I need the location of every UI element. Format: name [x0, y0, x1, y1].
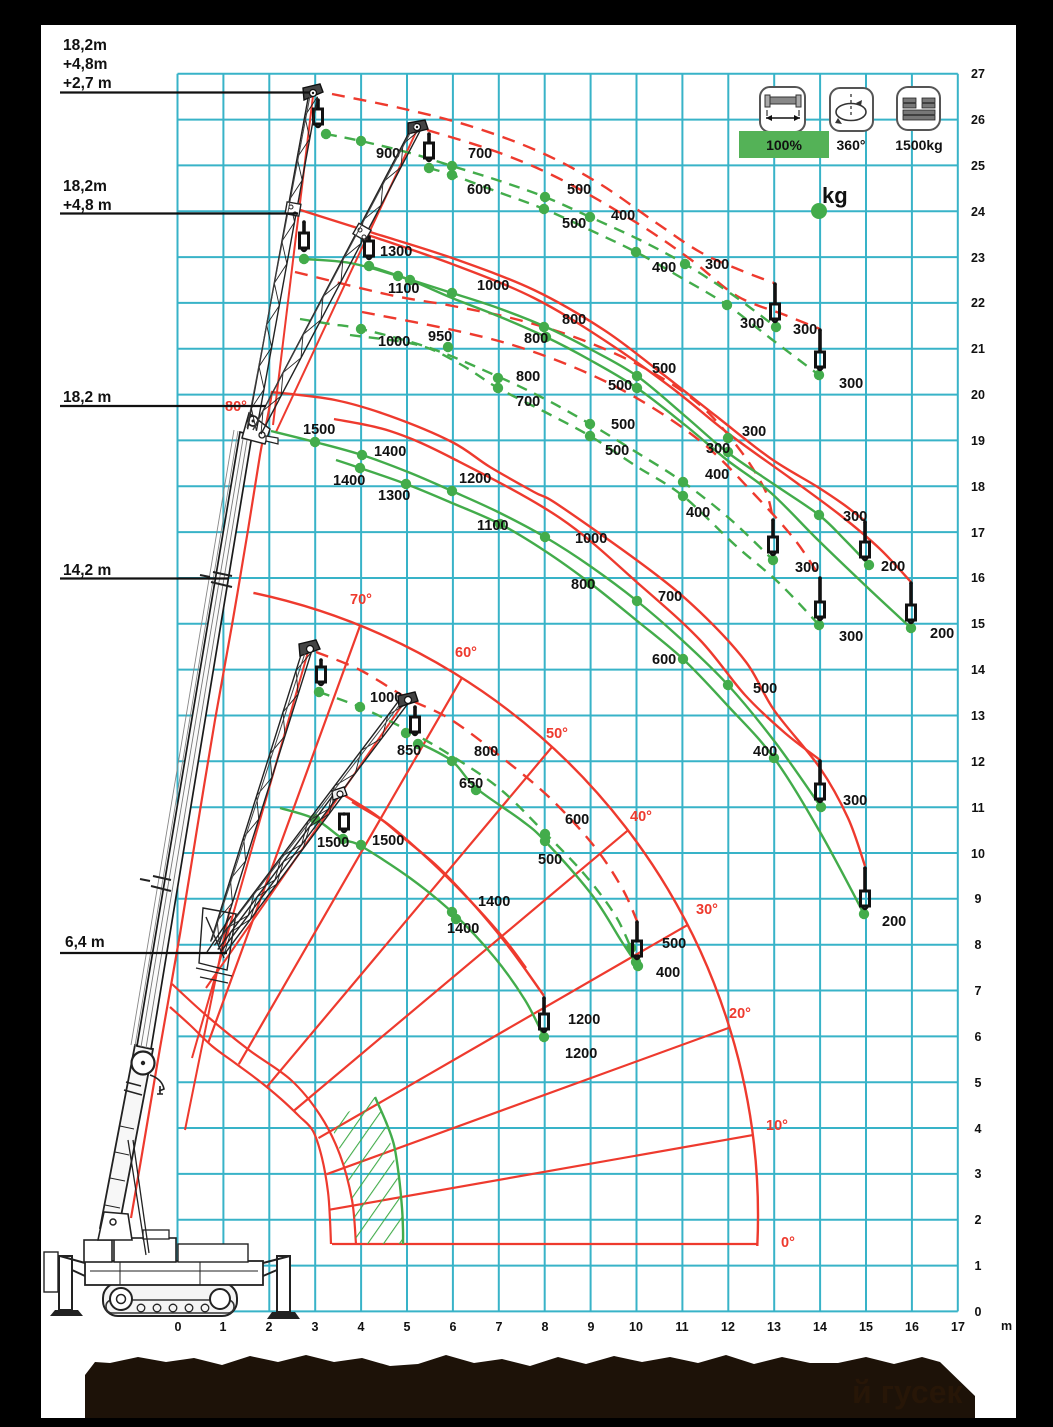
- svg-text:24: 24: [971, 205, 985, 219]
- svg-text:7: 7: [975, 984, 982, 998]
- svg-text:19: 19: [971, 434, 985, 448]
- svg-text:700: 700: [516, 394, 540, 410]
- svg-text:10: 10: [629, 1320, 643, 1334]
- svg-text:6,4 m: 6,4 m: [65, 934, 105, 951]
- svg-text:9: 9: [975, 892, 982, 906]
- svg-text:800: 800: [571, 577, 595, 593]
- svg-text:11: 11: [971, 801, 984, 815]
- svg-text:300: 300: [706, 441, 730, 457]
- svg-text:1200: 1200: [459, 471, 491, 487]
- svg-text:18,2m: 18,2m: [63, 37, 107, 54]
- svg-text:60°: 60°: [455, 645, 477, 661]
- svg-text:200: 200: [881, 559, 905, 575]
- svg-text:300: 300: [742, 424, 766, 440]
- svg-text:70°: 70°: [350, 592, 372, 608]
- svg-text:14: 14: [813, 1320, 827, 1334]
- svg-text:1200: 1200: [565, 1046, 597, 1062]
- svg-text:300: 300: [843, 793, 867, 809]
- svg-text:13: 13: [767, 1320, 781, 1334]
- svg-text:500: 500: [567, 182, 591, 198]
- svg-text:1400: 1400: [374, 444, 406, 460]
- svg-text:25: 25: [971, 159, 985, 173]
- svg-text:5: 5: [975, 1076, 982, 1090]
- svg-text:1500: 1500: [372, 833, 404, 849]
- svg-text:100%: 100%: [766, 137, 802, 153]
- svg-text:1500: 1500: [303, 422, 335, 438]
- svg-text:1: 1: [220, 1320, 227, 1334]
- svg-text:18,2m: 18,2m: [63, 178, 107, 195]
- svg-text:40°: 40°: [630, 809, 652, 825]
- svg-text:23: 23: [971, 251, 985, 265]
- svg-text:200: 200: [930, 626, 954, 642]
- svg-text:1000: 1000: [575, 531, 607, 547]
- svg-text:26: 26: [971, 113, 985, 127]
- svg-text:10°: 10°: [766, 1118, 788, 1134]
- svg-text:950: 950: [428, 329, 452, 345]
- svg-text:300: 300: [839, 629, 863, 645]
- svg-text:20°: 20°: [729, 1006, 751, 1022]
- svg-text:800: 800: [516, 369, 540, 385]
- svg-text:kg: kg: [822, 183, 848, 208]
- svg-text:9: 9: [588, 1320, 595, 1334]
- svg-text:700: 700: [468, 146, 492, 162]
- svg-text:18: 18: [971, 480, 985, 494]
- svg-text:5: 5: [404, 1320, 411, 1334]
- svg-text:300: 300: [795, 560, 819, 576]
- svg-text:15: 15: [971, 617, 985, 631]
- svg-text:18,2 m: 18,2 m: [63, 389, 111, 406]
- svg-text:500: 500: [538, 852, 562, 868]
- svg-text:m: m: [1001, 1319, 1012, 1333]
- svg-text:500: 500: [611, 417, 635, 433]
- svg-text:800: 800: [562, 312, 586, 328]
- svg-text:1300: 1300: [380, 244, 412, 260]
- svg-text:300: 300: [740, 316, 764, 332]
- svg-text:4: 4: [975, 1122, 982, 1136]
- svg-text:1: 1: [975, 1259, 982, 1273]
- svg-text:2: 2: [975, 1213, 982, 1227]
- svg-text:1400: 1400: [478, 894, 510, 910]
- svg-text:600: 600: [565, 812, 589, 828]
- svg-text:700: 700: [658, 589, 682, 605]
- svg-text:1100: 1100: [388, 281, 419, 297]
- svg-text:1100: 1100: [477, 518, 508, 534]
- svg-text:1300: 1300: [378, 488, 410, 504]
- svg-text:850: 850: [397, 743, 421, 759]
- svg-text:16: 16: [971, 571, 985, 585]
- svg-text:3: 3: [975, 1167, 982, 1181]
- svg-text:12: 12: [721, 1320, 735, 1334]
- svg-text:1400: 1400: [333, 473, 365, 489]
- svg-text:0: 0: [175, 1320, 182, 1334]
- svg-text:1400: 1400: [447, 921, 479, 937]
- svg-text:300: 300: [843, 509, 867, 525]
- svg-text:12: 12: [971, 755, 985, 769]
- svg-text:8: 8: [975, 938, 982, 952]
- svg-text:2: 2: [266, 1320, 273, 1334]
- svg-text:500: 500: [608, 378, 632, 394]
- svg-text:6: 6: [450, 1320, 457, 1334]
- svg-text:+4,8 m: +4,8 m: [63, 197, 112, 214]
- svg-text:650: 650: [459, 776, 483, 792]
- svg-text:800: 800: [524, 331, 548, 347]
- svg-text:400: 400: [656, 965, 680, 981]
- svg-text:й гусек: й гусек: [852, 1374, 963, 1410]
- svg-text:0°: 0°: [781, 1235, 795, 1251]
- svg-text:13: 13: [971, 709, 985, 723]
- svg-text:7: 7: [496, 1320, 503, 1334]
- svg-text:11: 11: [675, 1320, 688, 1334]
- svg-text:360°: 360°: [837, 137, 866, 153]
- svg-text:400: 400: [652, 260, 676, 276]
- svg-text:600: 600: [467, 182, 491, 198]
- svg-text:1500: 1500: [317, 835, 349, 851]
- svg-text:10: 10: [971, 847, 985, 861]
- svg-text:500: 500: [753, 681, 777, 697]
- svg-text:6: 6: [975, 1030, 982, 1044]
- svg-text:1000: 1000: [378, 334, 410, 350]
- svg-text:500: 500: [662, 936, 686, 952]
- svg-text:21: 21: [971, 342, 985, 356]
- svg-text:17: 17: [951, 1320, 965, 1334]
- svg-text:20: 20: [971, 388, 985, 402]
- svg-text:+2,7 m: +2,7 m: [63, 75, 112, 92]
- svg-text:500: 500: [562, 216, 586, 232]
- svg-text:500: 500: [605, 443, 629, 459]
- svg-text:600: 600: [652, 652, 676, 668]
- svg-text:400: 400: [753, 744, 777, 760]
- svg-text:0: 0: [975, 1305, 982, 1319]
- svg-text:22: 22: [971, 296, 985, 310]
- svg-text:30°: 30°: [696, 902, 718, 918]
- svg-text:1000: 1000: [477, 278, 509, 294]
- svg-text:1200: 1200: [568, 1012, 600, 1028]
- svg-text:400: 400: [611, 208, 635, 224]
- svg-text:17: 17: [971, 526, 985, 540]
- svg-text:+4,8m: +4,8m: [63, 56, 107, 73]
- svg-text:300: 300: [839, 376, 863, 392]
- svg-text:14: 14: [971, 663, 985, 677]
- svg-text:3: 3: [312, 1320, 319, 1334]
- svg-text:1500kg: 1500kg: [895, 137, 942, 153]
- svg-text:27: 27: [971, 67, 985, 81]
- svg-text:200: 200: [882, 914, 906, 930]
- svg-text:4: 4: [358, 1320, 365, 1334]
- svg-text:15: 15: [859, 1320, 873, 1334]
- svg-text:16: 16: [905, 1320, 919, 1334]
- svg-text:300: 300: [793, 322, 817, 338]
- svg-text:800: 800: [474, 744, 498, 760]
- svg-text:14,2 m: 14,2 m: [63, 562, 111, 579]
- svg-text:50°: 50°: [546, 726, 568, 742]
- svg-text:500: 500: [652, 361, 676, 377]
- svg-text:8: 8: [542, 1320, 549, 1334]
- svg-text:400: 400: [705, 467, 729, 483]
- svg-text:300: 300: [705, 257, 729, 273]
- svg-text:400: 400: [686, 505, 710, 521]
